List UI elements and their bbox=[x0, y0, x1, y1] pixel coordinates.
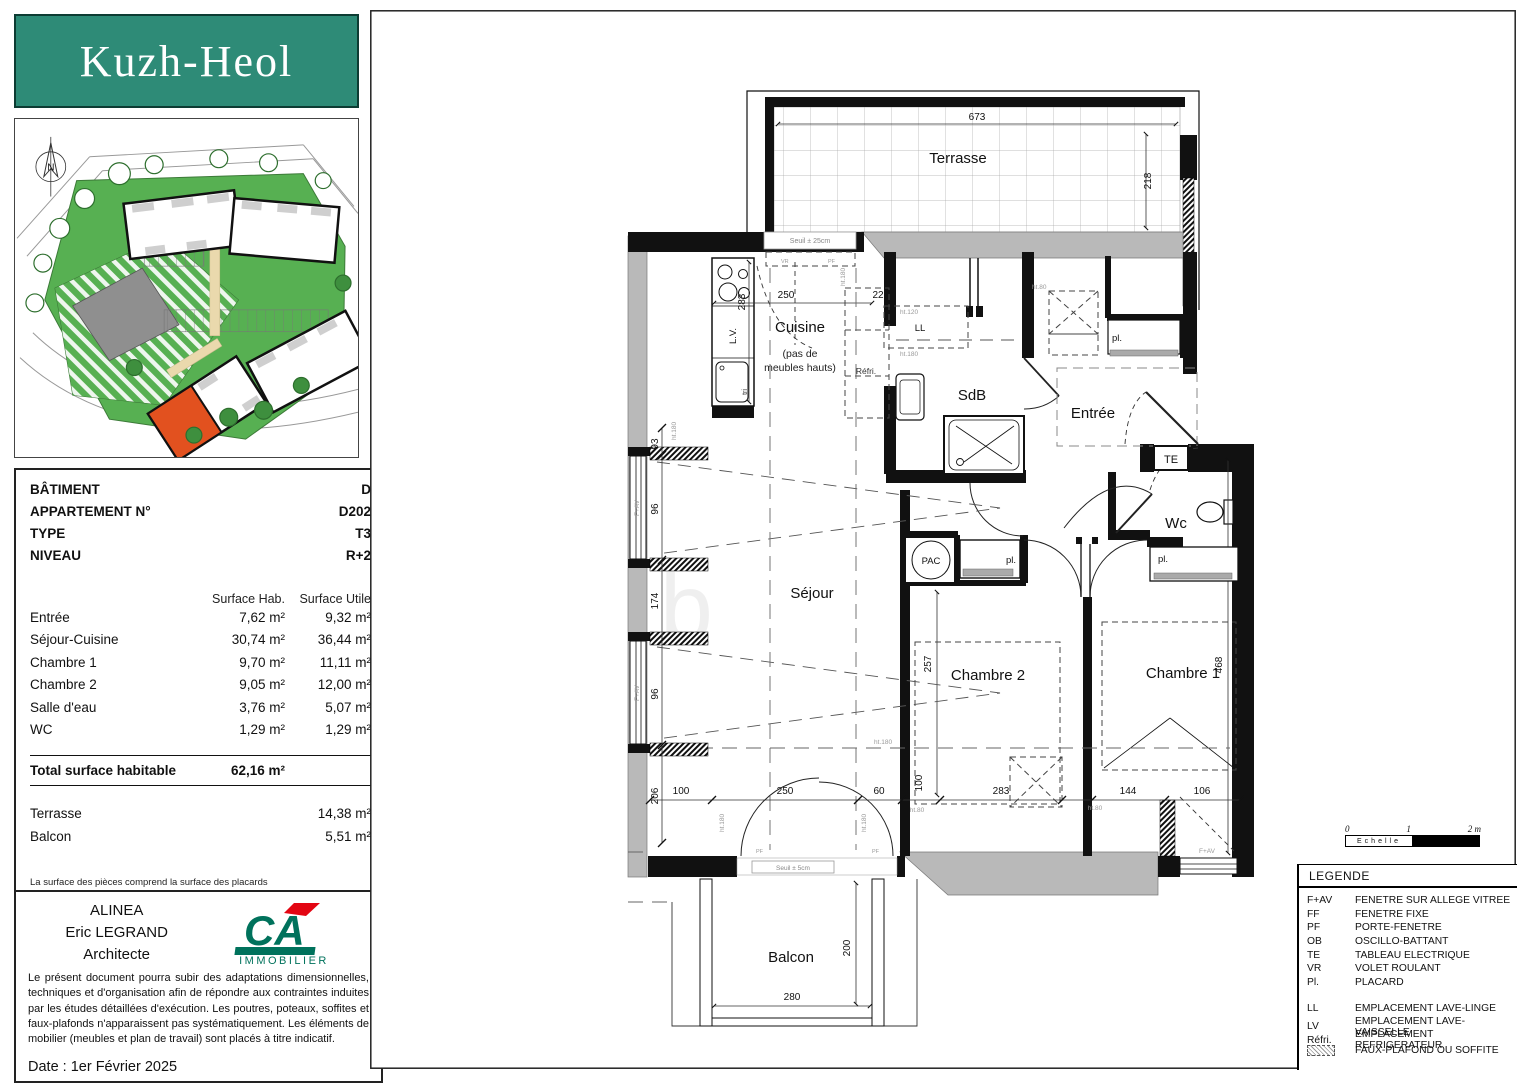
parking-row bbox=[164, 310, 328, 332]
apartment-info-panel: BÂTIMENTD APPARTEMENT N°D202 TYPET3 NIVE… bbox=[14, 468, 387, 898]
table-row: Entrée7,62 m²9,32 m² bbox=[30, 606, 371, 629]
table-row: Séjour-Cuisine30,74 m²36,44 m² bbox=[30, 629, 371, 652]
dim-terrace-depth: 218 bbox=[1143, 172, 1154, 189]
dim-chambre1: 468 bbox=[1214, 656, 1225, 673]
dim-283: 283 bbox=[993, 786, 1010, 797]
height-label: ht.180 bbox=[840, 268, 847, 286]
dim-100: 100 bbox=[914, 774, 925, 791]
legend-row: VRVOLET ROULANT bbox=[1299, 962, 1517, 976]
placard-label: pl. bbox=[1158, 554, 1168, 565]
project-logo-text: Kuzh-Heol bbox=[80, 36, 294, 87]
architect-panel: ALINEA Eric LEGRAND Architecte CA IMMOBI… bbox=[14, 890, 383, 1083]
ca-letters: CA bbox=[244, 907, 305, 954]
total-surface-row: Total surface habitable 62,16 m² bbox=[30, 755, 371, 786]
compass-north: N bbox=[36, 137, 66, 197]
dim-counter: 283 bbox=[737, 293, 748, 310]
total-value: 62,16 m² bbox=[193, 763, 285, 778]
height-label: ht.80 bbox=[910, 807, 925, 814]
exterior-surfaces: Terrasse14,38 m² Balcon5,51 m² bbox=[30, 802, 371, 848]
room-label-entree: Entrée bbox=[1071, 405, 1115, 422]
ca-underline bbox=[235, 947, 316, 955]
dim-96: 96 bbox=[650, 688, 661, 700]
tri-label: tri bbox=[742, 389, 749, 395]
field-label: NIVEAU bbox=[30, 548, 81, 570]
disclaimer-text: Le présent document pourra subir des ada… bbox=[28, 971, 369, 1047]
dim-balcony-width: 280 bbox=[784, 992, 801, 1003]
height-label: ht.180 bbox=[874, 739, 892, 746]
scale-1: 1 bbox=[1406, 824, 1411, 834]
building-a bbox=[124, 190, 241, 259]
surface-table-header: Surface Hab. Surface Utile bbox=[30, 592, 371, 606]
dim-106: 106 bbox=[1194, 786, 1211, 797]
apartment-fields: BÂTIMENTD APPARTEMENT N°D202 TYPET3 NIVE… bbox=[30, 482, 371, 570]
pf-tag: PF bbox=[872, 849, 880, 855]
roller-shutter-box bbox=[1160, 800, 1175, 856]
site-plan-map: N bbox=[14, 118, 359, 458]
legend-row: LVEMPLACEMENT LAVE-VAISSELLE bbox=[1299, 1016, 1517, 1030]
floorplan-document: { "logo": {"title": "Kuzh-Heol"}, "site_… bbox=[0, 0, 1528, 1079]
dim-balcony-depth: 200 bbox=[842, 939, 853, 956]
table-row: Balcon5,51 m² bbox=[30, 825, 371, 848]
architect-names: ALINEA Eric LEGRAND Architecte bbox=[28, 900, 205, 965]
window-type-label: F+AV bbox=[634, 499, 641, 516]
surface-table: Entrée7,62 m²9,32 m² Séjour-Cuisine30,74… bbox=[30, 606, 371, 741]
dim-174: 174 bbox=[650, 592, 661, 609]
legend-row: FFFENETRE FIXE bbox=[1299, 908, 1517, 922]
table-row: Chambre 29,05 m²12,00 m² bbox=[30, 674, 371, 697]
window-type-label: F+AV bbox=[634, 684, 641, 701]
dim-terrace-width: 673 bbox=[969, 112, 986, 123]
electrical-panel-label: TE bbox=[1164, 454, 1178, 466]
architect-role: Architecte bbox=[28, 944, 205, 966]
room-label-chambre1: Chambre 1 bbox=[1146, 665, 1220, 682]
terrace-tiles bbox=[774, 107, 1180, 232]
scale-black-segment bbox=[1413, 835, 1480, 847]
vr-tag: VR bbox=[781, 259, 789, 265]
height-label: ht.120 bbox=[900, 309, 918, 316]
threshold-label: Seuil ± 5cm bbox=[776, 865, 810, 872]
field-value: D202 bbox=[339, 504, 371, 526]
legend-row: TETABLEAU ELECTRIQUE bbox=[1299, 948, 1517, 962]
field-value: R+2 bbox=[346, 548, 371, 570]
scale-bar: 0 1 2 m Echelle bbox=[1345, 824, 1481, 847]
table-row: Salle d'eau3,76 m²5,07 m² bbox=[30, 696, 371, 719]
architect-name: Eric LEGRAND bbox=[28, 922, 205, 944]
dim-206: 206 bbox=[650, 787, 661, 804]
document-date: Date : 1er Février 2025 bbox=[28, 1059, 177, 1075]
height-label: ht.80 bbox=[1088, 805, 1103, 812]
dim-93: 93 bbox=[650, 438, 661, 450]
room-label-balcon: Balcon bbox=[768, 949, 814, 966]
dim-kitchen-width: 250 bbox=[778, 290, 795, 301]
total-label: Total surface habitable bbox=[30, 763, 193, 778]
firm-name: ALINEA bbox=[28, 900, 205, 922]
dim-250: 250 bbox=[777, 786, 794, 797]
dim-144: 144 bbox=[1120, 786, 1137, 797]
table-row: Terrasse14,38 m² bbox=[30, 802, 371, 825]
table-row: Chambre 19,70 m²11,11 m² bbox=[30, 651, 371, 674]
dim-chambre2: 257 bbox=[923, 655, 934, 672]
legend-row: Pl.PLACARD bbox=[1299, 976, 1517, 990]
field-label: APPARTEMENT N° bbox=[30, 504, 151, 526]
height-label: ht.180 bbox=[671, 422, 678, 440]
scale-2: 2 m bbox=[1468, 824, 1481, 834]
field-label: TYPE bbox=[30, 526, 65, 548]
height-label: ht.80 bbox=[1032, 284, 1047, 291]
room-label-cuisine: Cuisine bbox=[775, 319, 825, 336]
project-logo-banner: Kuzh-Heol bbox=[14, 14, 359, 108]
sink-icon bbox=[716, 362, 748, 402]
cuisine-note-1: (pas de bbox=[782, 348, 817, 360]
legend-row: LLEMPLACEMENT LAVE-LINGE bbox=[1299, 1002, 1517, 1016]
field-value: T3 bbox=[355, 526, 371, 548]
dim-96: 96 bbox=[650, 503, 661, 515]
building-b bbox=[230, 198, 340, 263]
dim-100: 100 bbox=[673, 786, 690, 797]
site-plan-svg: N bbox=[15, 119, 358, 457]
field-label: BÂTIMENT bbox=[30, 482, 100, 504]
hatch-swatch bbox=[1307, 1045, 1335, 1056]
washer-label: LL bbox=[915, 323, 926, 334]
legend-row-hatch: FAUX-PLAFOND OU SOFFITE bbox=[1299, 1043, 1517, 1058]
legend-panel: LEGENDE F+AVFENETRE SUR ALLEGE VITREE FF… bbox=[1297, 864, 1517, 1070]
dim-22: 22 bbox=[872, 290, 884, 301]
room-label-wc: Wc bbox=[1165, 515, 1187, 532]
threshold-label: Seuil ± 25cm bbox=[790, 238, 831, 245]
fridge-label: Réfri. bbox=[856, 366, 876, 376]
compass-label: N bbox=[47, 163, 54, 174]
height-label: ht.180 bbox=[719, 814, 726, 832]
legend-row: OBOSCILLO-BATTANT bbox=[1299, 935, 1517, 949]
room-label-chambre2: Chambre 2 bbox=[951, 667, 1025, 684]
dishwasher-label: L.V. bbox=[728, 328, 739, 344]
pf-tag: PF bbox=[828, 259, 836, 265]
legend-title: LEGENDE bbox=[1299, 865, 1517, 888]
ca-immobilier-text: IMMOBILIER bbox=[239, 955, 329, 965]
room-label-terrasse: Terrasse bbox=[929, 150, 987, 167]
window-type-label: F+AV bbox=[1199, 848, 1216, 855]
pac-label: PAC bbox=[922, 556, 941, 567]
dim-60: 60 bbox=[873, 786, 885, 797]
col-surface-utile: Surface Utile bbox=[285, 592, 371, 606]
table-row: WC1,29 m²1,29 m² bbox=[30, 719, 371, 742]
room-label-sdb: SdB bbox=[958, 387, 986, 404]
ca-immobilier-logo: CA IMMOBILIER bbox=[205, 901, 369, 965]
legend-row: F+AVFENETRE SUR ALLEGE VITREE bbox=[1299, 894, 1517, 908]
legend-row: PFPORTE-FENETRE bbox=[1299, 921, 1517, 935]
scale-0: 0 bbox=[1345, 824, 1350, 834]
height-label: ht.180 bbox=[861, 814, 868, 832]
surface-note: La surface des pièces comprend la surfac… bbox=[30, 877, 268, 888]
placard-label: pl. bbox=[1006, 555, 1016, 566]
toilet-icon bbox=[1197, 502, 1223, 522]
scale-label: Echelle bbox=[1345, 835, 1413, 847]
height-label: ht.180 bbox=[900, 351, 918, 358]
pf-tag: PF bbox=[756, 849, 764, 855]
placard-label: pl. bbox=[1112, 333, 1122, 344]
room-label-sejour: Séjour bbox=[790, 585, 833, 602]
cuisine-note-2: meubles hauts) bbox=[764, 362, 836, 374]
col-surface-hab: Surface Hab. bbox=[193, 592, 285, 606]
